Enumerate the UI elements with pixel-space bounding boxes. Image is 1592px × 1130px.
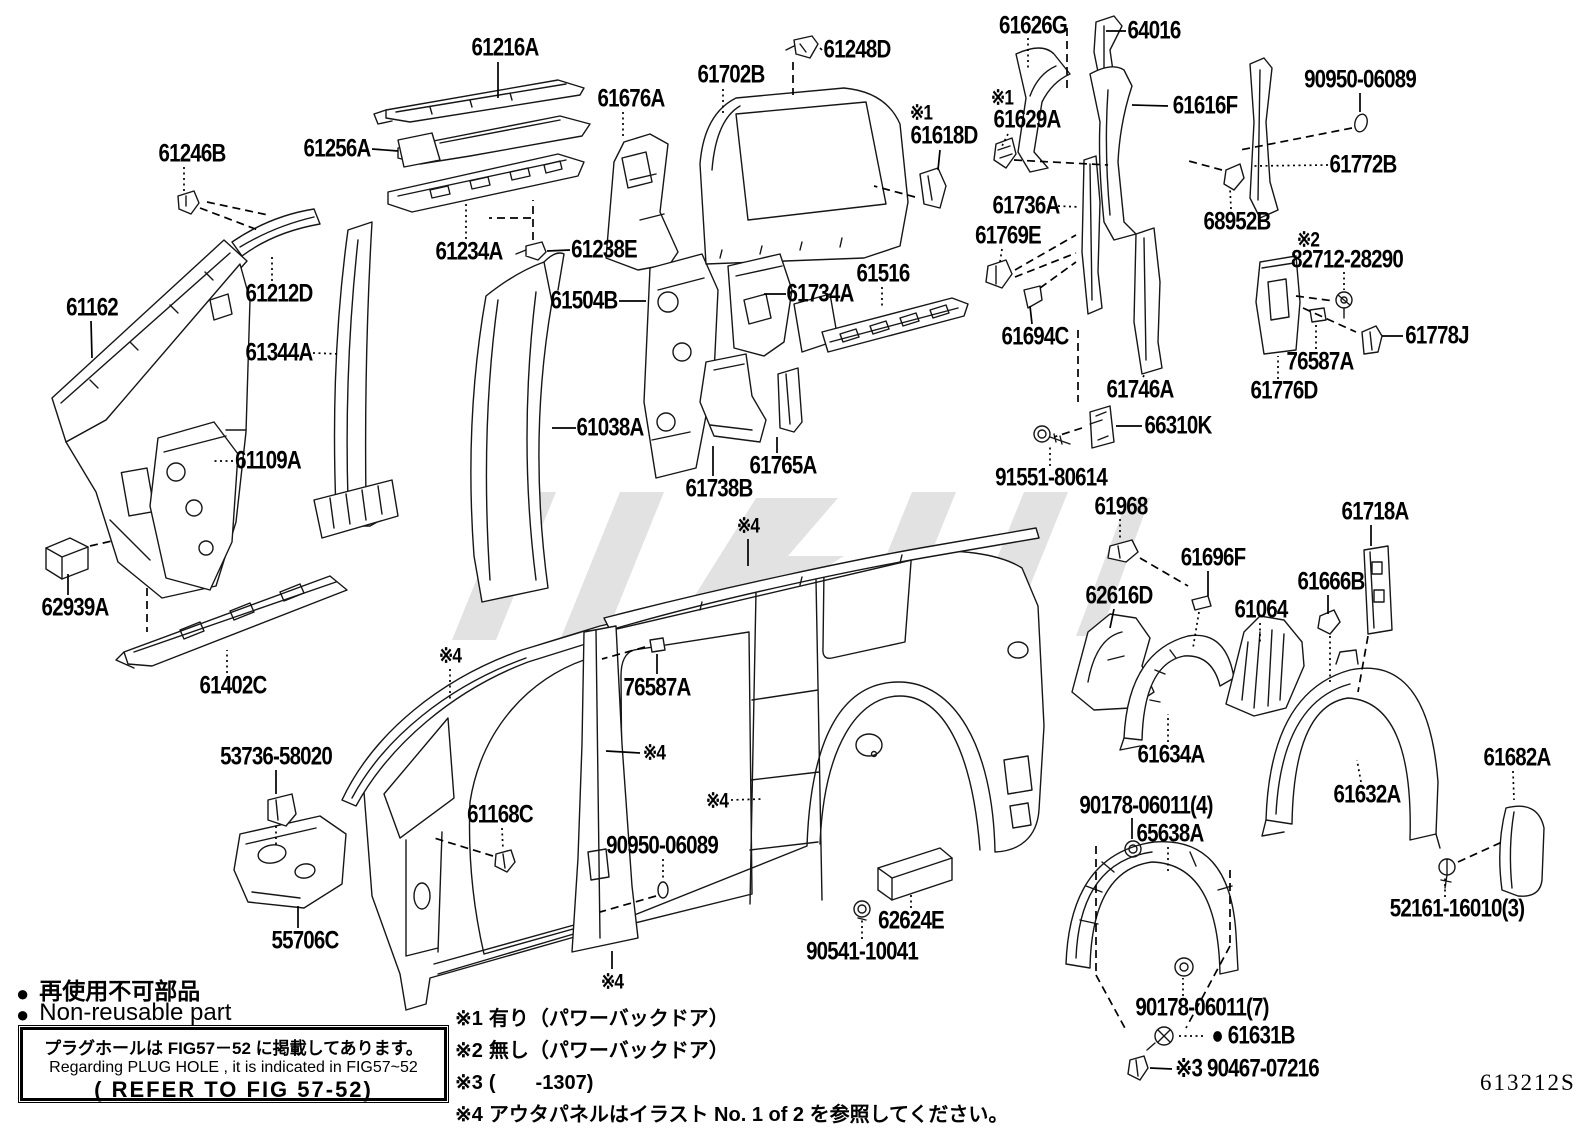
nonreusable-bullet-icon: ● bbox=[16, 1002, 29, 1027]
part-label-61765a: 61765A bbox=[750, 454, 817, 479]
part-label-61769e: 61769E bbox=[975, 224, 1041, 249]
part-label-61216a: 61216A bbox=[472, 36, 539, 61]
part-label-90467-07216: ※3 90467-07216 bbox=[1175, 1057, 1319, 1082]
part-label-61162: 61162 bbox=[66, 296, 118, 321]
part-label-61168c: 61168C bbox=[467, 803, 533, 828]
footnote-4-text: アウタパネルはイラスト No. 1 of 2 を参照してください。 bbox=[489, 1104, 1009, 1126]
part-label-82712-28290: 82712-28290 bbox=[1291, 248, 1403, 273]
part-label-90541-10041: 90541-10041 bbox=[806, 940, 918, 965]
footnote-3: ※3( -1307) bbox=[455, 1066, 1008, 1095]
part-label-76587a-right: 76587A bbox=[1287, 350, 1354, 375]
part-label-61718a: 61718A bbox=[1342, 500, 1409, 525]
part-label-mark4-rocker: ※4 bbox=[601, 972, 623, 993]
part-label-76587a-center: 76587A bbox=[624, 676, 691, 701]
plug-note-ja: プラグホールは FIG57－52 に掲載してあります。 bbox=[23, 1034, 444, 1059]
parts-diagram-canvas: 61216A61248D61702B61676A61626G6401690950… bbox=[0, 0, 1592, 1099]
plug-note-ref: ( REFER TO FIG 57-52) bbox=[23, 1077, 444, 1103]
part-label-90950-06089-bottom: 90950-06089 bbox=[606, 834, 718, 859]
part-label-90178-06011-4: 90178-06011(4) bbox=[1079, 794, 1212, 819]
part-label-61256a: 61256A bbox=[304, 137, 371, 162]
part-label-61248d: 61248D bbox=[824, 38, 891, 63]
legend-nonreusable-en: ●Non-reusable part bbox=[16, 999, 231, 1028]
part-label-61064: 61064 bbox=[1235, 598, 1288, 623]
footnote-3-text: ( -1307) bbox=[489, 1072, 593, 1094]
part-label-61629a: 61629A bbox=[994, 108, 1061, 133]
part-label-61246b: 61246B bbox=[159, 142, 226, 167]
plug-note-en: Regarding PLUG HOLE , it is indicated in… bbox=[23, 1059, 444, 1077]
legend-en-text: Non-reusable part bbox=[39, 999, 231, 1026]
part-label-61038a: 61038A bbox=[577, 416, 644, 441]
part-label-53736-58020: 53736-58020 bbox=[220, 745, 332, 770]
part-label-61402c: 61402C bbox=[200, 674, 267, 699]
part-label-61631b: ● 61631B bbox=[1211, 1024, 1294, 1049]
part-label-64016: 64016 bbox=[1128, 19, 1181, 44]
part-label-61734a: 61734A bbox=[787, 282, 854, 307]
part-label-66310k: 66310K bbox=[1145, 414, 1212, 439]
part-label-mark4-apillar: ※4 bbox=[439, 646, 461, 667]
footnote-3-mark: ※3 bbox=[455, 1072, 483, 1094]
footnote-2-mark: ※2 bbox=[455, 1040, 483, 1062]
part-label-61632a: 61632A bbox=[1334, 783, 1401, 808]
part-label-90178-06011-7: 90178-06011(7) bbox=[1135, 996, 1268, 1021]
footnote-4: ※4アウタパネルはイラスト No. 1 of 2 を参照してください。 bbox=[455, 1098, 1008, 1127]
part-label-61736a: 61736A bbox=[993, 194, 1060, 219]
part-label-mark4-roof: ※4 bbox=[737, 516, 759, 537]
part-label-61238e: 61238E bbox=[571, 238, 637, 263]
part-label-61634a: 61634A bbox=[1138, 743, 1205, 768]
part-label-62939a: 62939A bbox=[42, 596, 109, 621]
footnote-2: ※2無し（パワーバックドア） bbox=[455, 1034, 1008, 1063]
part-label-62624e: 62624E bbox=[878, 909, 944, 934]
footnote-2-text: 無し（パワーバックドア） bbox=[489, 1040, 729, 1062]
part-label-61618d: 61618D bbox=[911, 124, 978, 149]
part-label-65638a: 65638A bbox=[1137, 822, 1204, 847]
footnotes: ※1有り（パワーバックドア） ※2無し（パワーバックドア） ※3( -1307)… bbox=[455, 1002, 1008, 1130]
part-label-61666b: 61666B bbox=[1298, 570, 1365, 595]
footnote-1-mark: ※1 bbox=[455, 1008, 483, 1030]
part-label-61776d: 61776D bbox=[1251, 379, 1318, 404]
part-label-55706c: 55706C bbox=[272, 929, 339, 954]
part-label-61746a: 61746A bbox=[1107, 378, 1174, 403]
part-label-61504b: 61504B bbox=[551, 289, 618, 314]
part-label-52161-16010: 52161-16010(3) bbox=[1390, 897, 1524, 922]
part-label-90950-06089-top: 90950-06089 bbox=[1304, 68, 1416, 93]
part-labels-layer: 61216A61248D61702B61676A61626G6401690950… bbox=[0, 0, 1592, 1099]
part-label-61702b: 61702B bbox=[698, 63, 765, 88]
part-label-61516: 61516 bbox=[857, 262, 910, 287]
part-label-61109a: 61109A bbox=[235, 449, 301, 474]
footnote-1-text: 有り（パワーバックドア） bbox=[489, 1008, 729, 1030]
part-label-mark4-cpillar: ※4 bbox=[706, 791, 728, 812]
part-label-61344a: 61344A bbox=[246, 341, 313, 366]
part-label-61626g: 61626G bbox=[999, 14, 1067, 39]
plug-hole-note-box: プラグホールは FIG57－52 に掲載してあります。 Regarding PL… bbox=[20, 1027, 447, 1101]
part-label-61772b: 61772B bbox=[1330, 153, 1397, 178]
part-label-61778j: 61778J bbox=[1405, 324, 1468, 349]
footnote-4-mark: ※4 bbox=[455, 1104, 483, 1126]
part-label-61212d: 61212D bbox=[246, 282, 313, 307]
part-label-61694c: 61694C bbox=[1002, 325, 1069, 350]
part-label-mark4-bpillar: ※4 bbox=[643, 743, 665, 764]
footnote-1: ※1有り（パワーバックドア） bbox=[455, 1002, 1008, 1031]
diagram-code: 613212S bbox=[1480, 1070, 1576, 1096]
part-label-61968: 61968 bbox=[1095, 495, 1148, 520]
part-label-62616d: 62616D bbox=[1086, 584, 1153, 609]
part-label-61696f: 61696F bbox=[1181, 546, 1246, 571]
part-label-mark1-61618d: ※1 bbox=[910, 103, 932, 124]
part-label-91551-80614: 91551-80614 bbox=[995, 466, 1107, 491]
part-label-61616f: 61616F bbox=[1173, 94, 1238, 119]
part-label-68952b: 68952B bbox=[1204, 210, 1271, 235]
part-label-61682a: 61682A bbox=[1484, 746, 1551, 771]
part-label-61738b: 61738B bbox=[686, 477, 753, 502]
part-label-61676a: 61676A bbox=[598, 87, 665, 112]
part-label-61234a: 61234A bbox=[436, 240, 503, 265]
